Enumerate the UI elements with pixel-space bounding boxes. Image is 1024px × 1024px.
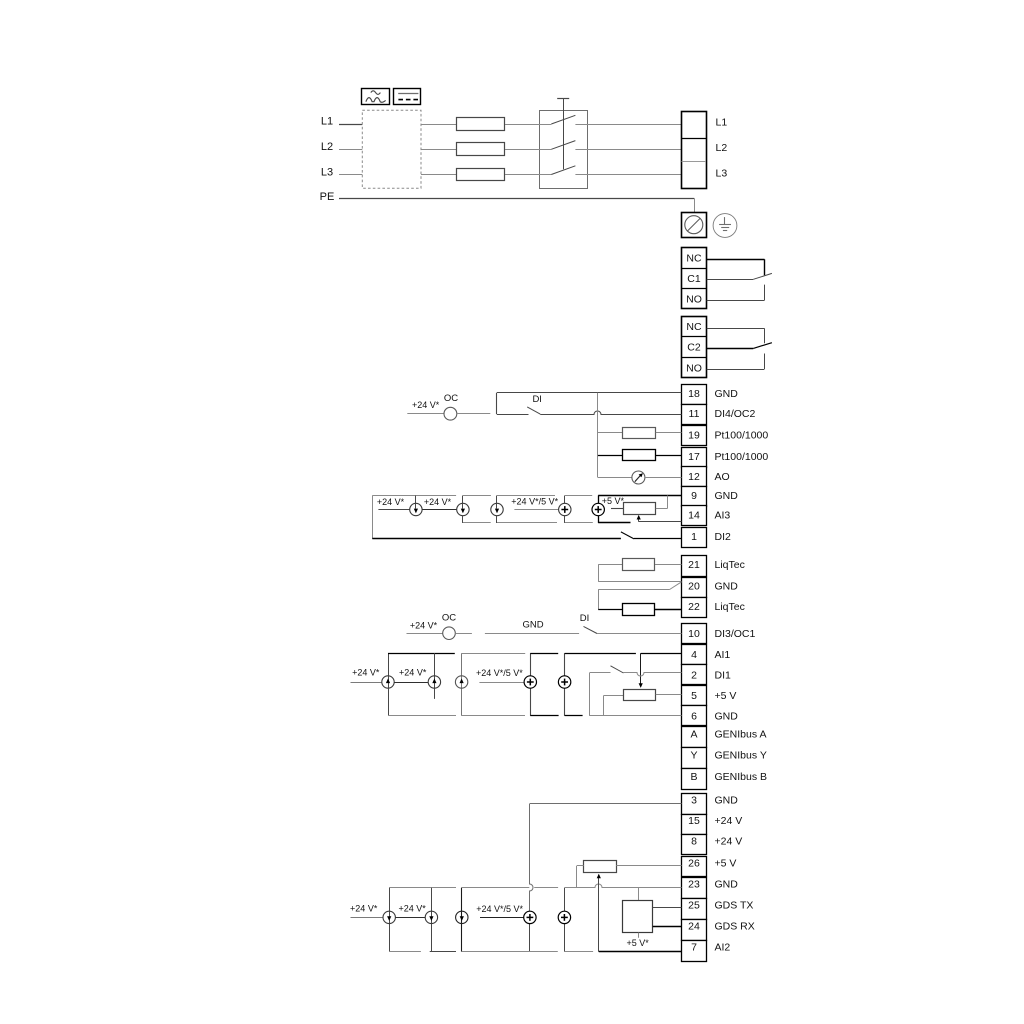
svg-text:GDS RX: GDS RX <box>715 920 755 932</box>
svg-text:7: 7 <box>691 942 697 954</box>
svg-text:GENIbus Y: GENIbus Y <box>715 750 767 762</box>
svg-text:+5 V*: +5 V* <box>602 496 625 506</box>
svg-text:1: 1 <box>691 531 697 543</box>
svg-text:NO: NO <box>686 362 702 374</box>
svg-text:PE: PE <box>320 191 335 203</box>
svg-text:22: 22 <box>688 601 700 613</box>
svg-text:+24 V*: +24 V* <box>377 497 405 507</box>
svg-text:A: A <box>690 729 697 741</box>
svg-text:B: B <box>690 771 697 783</box>
svg-text:+24 V*: +24 V* <box>410 620 438 630</box>
svg-text:C1: C1 <box>687 273 701 285</box>
svg-text:21: 21 <box>688 559 700 571</box>
svg-text:5: 5 <box>691 690 697 702</box>
svg-text:DI2: DI2 <box>715 531 732 543</box>
svg-text:GENIbus A: GENIbus A <box>715 729 767 741</box>
svg-text:6: 6 <box>691 710 697 722</box>
svg-text:OC: OC <box>442 612 456 623</box>
svg-text:NO: NO <box>686 294 702 306</box>
svg-text:GND: GND <box>715 710 739 722</box>
svg-text:+24 V*: +24 V* <box>399 668 427 678</box>
svg-text:L1: L1 <box>716 117 728 129</box>
svg-text:26: 26 <box>688 857 700 869</box>
svg-text:LiqTec: LiqTec <box>715 601 745 613</box>
svg-text:L3: L3 <box>716 167 728 179</box>
svg-text:GND: GND <box>715 879 739 891</box>
svg-text:+5 V*: +5 V* <box>626 938 649 948</box>
svg-text:DI: DI <box>532 394 542 405</box>
svg-text:GND: GND <box>522 619 543 630</box>
svg-text:AI2: AI2 <box>715 942 731 954</box>
svg-text:+24 V: +24 V <box>715 815 743 827</box>
svg-text:GND: GND <box>715 794 739 806</box>
svg-text:GDS TX: GDS TX <box>715 900 754 912</box>
svg-text:AI1: AI1 <box>715 649 731 661</box>
svg-text:+24 V*: +24 V* <box>398 904 426 914</box>
svg-text:4: 4 <box>691 649 697 661</box>
svg-text:Pt100/1000: Pt100/1000 <box>715 451 769 463</box>
svg-text:AO: AO <box>715 471 730 483</box>
svg-text:GND: GND <box>715 388 739 400</box>
svg-text:2: 2 <box>691 670 697 682</box>
svg-text:18: 18 <box>688 388 700 400</box>
svg-text:NC: NC <box>686 321 702 333</box>
svg-text:9: 9 <box>691 490 697 502</box>
svg-text:+24 V*/5 V*: +24 V*/5 V* <box>476 668 523 678</box>
svg-text:+5 V: +5 V <box>715 857 737 869</box>
svg-text:DI4/OC2: DI4/OC2 <box>715 408 756 420</box>
svg-text:3: 3 <box>691 794 697 806</box>
svg-text:+24 V*: +24 V* <box>352 668 380 678</box>
svg-text:C2: C2 <box>687 342 701 354</box>
svg-text:+24 V*: +24 V* <box>412 400 440 410</box>
svg-text:12: 12 <box>688 471 700 483</box>
svg-text:GENIbus B: GENIbus B <box>715 771 768 783</box>
svg-text:L2: L2 <box>716 142 728 154</box>
svg-text:DI3/OC1: DI3/OC1 <box>715 628 756 640</box>
svg-text:19: 19 <box>688 429 700 441</box>
svg-text:+24 V*: +24 V* <box>350 904 378 914</box>
svg-text:L2: L2 <box>321 141 333 153</box>
svg-text:GND: GND <box>715 581 739 593</box>
svg-text:DI1: DI1 <box>715 670 732 682</box>
svg-text:14: 14 <box>688 509 700 521</box>
svg-text:+24 V*/5 V*: +24 V*/5 V* <box>511 496 558 506</box>
svg-text:10: 10 <box>688 628 700 640</box>
svg-text:GND: GND <box>715 490 739 502</box>
svg-text:Pt100/1000: Pt100/1000 <box>715 429 769 441</box>
svg-text:8: 8 <box>691 835 697 847</box>
svg-text:OC: OC <box>444 393 458 404</box>
svg-text:DI: DI <box>580 613 590 624</box>
svg-text:+24 V: +24 V <box>715 835 743 847</box>
svg-text:+5 V: +5 V <box>715 690 737 702</box>
svg-text:L1: L1 <box>321 115 333 127</box>
svg-text:17: 17 <box>688 451 700 463</box>
svg-text:+24 V*/5 V*: +24 V*/5 V* <box>476 904 523 914</box>
svg-text:LiqTec: LiqTec <box>715 559 745 571</box>
svg-text:+24 V*: +24 V* <box>424 497 452 507</box>
svg-text:25: 25 <box>688 900 700 912</box>
svg-text:23: 23 <box>688 879 700 891</box>
svg-text:11: 11 <box>689 408 700 420</box>
svg-text:L3: L3 <box>321 166 333 178</box>
svg-text:Y: Y <box>690 750 697 762</box>
svg-text:NC: NC <box>686 253 702 265</box>
svg-text:15: 15 <box>688 815 700 827</box>
svg-text:24: 24 <box>688 920 700 932</box>
svg-text:20: 20 <box>688 581 700 593</box>
svg-text:AI3: AI3 <box>715 509 731 521</box>
